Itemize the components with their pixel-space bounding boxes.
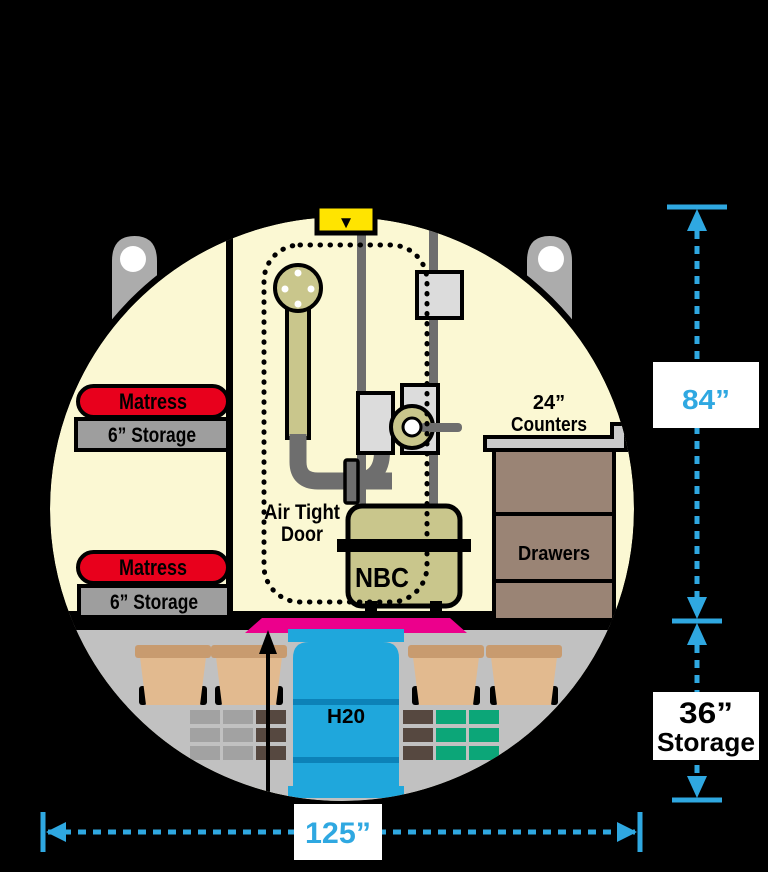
shower-nozzle-dot [295,301,302,308]
bin [256,746,286,760]
bin [223,728,253,742]
bin [469,728,499,742]
bin [223,710,253,724]
counter-label-line2: Counters [511,414,587,436]
nbc-leg-right [430,601,442,617]
entry-hatch-marker: ▼ [317,206,375,233]
bucket [413,657,479,705]
storage-shelf-upper-label: 6” Storage [108,424,196,447]
shelter-cross-section-diagram: Matress 6” Storage Matress 6” Storage 24… [0,0,768,872]
lug-plate-right [572,233,578,313]
drawers-label: Drawers [518,543,590,565]
air-tight-door-label-line2: Door [281,523,323,546]
bin [436,728,466,742]
interior-height-value: 84” [682,384,730,415]
nbc-band [337,539,471,552]
bucket [216,657,282,705]
water-label: H20 [327,706,365,728]
counter-label-line1: 24” [533,392,565,414]
storage-shelf-lower-label: 6” Storage [110,591,198,614]
bin [436,710,466,724]
storage-bins-left [190,710,286,760]
bucket [140,657,206,705]
bucket-lid [135,645,211,658]
drawer-cabinet [494,448,614,620]
storage-height-value: 36” [679,697,733,730]
bucket-lid [408,645,484,658]
shower-nozzle-dot [295,270,302,277]
barrel-top-rim [288,629,404,642]
pipe-fitting [345,460,358,503]
lug-hole-left [120,246,146,272]
lug-plate-left [106,233,112,313]
bin [403,746,433,760]
bin [469,710,499,724]
diagram-canvas: Matress 6” Storage Matress 6” Storage 24… [0,0,768,872]
storage-height-word: Storage [657,727,755,757]
shower-stalk [287,300,309,438]
barrel-bottom-rim [288,786,404,798]
bin [190,746,220,760]
overall-width-value: 125” [305,817,371,850]
bin [256,728,286,742]
shower-nozzle-dot [282,286,289,293]
bucket-lid [486,645,562,658]
bin [436,746,466,760]
exhaust-pipe [429,210,438,510]
air-pump-body [358,393,393,453]
bin [190,710,220,724]
mattress-upper-label: Matress [119,389,187,414]
crank-hub [403,418,421,436]
lug-hole-right [538,246,564,272]
storage-bins-right [403,710,499,760]
water-barrel: H20 [288,629,404,798]
bin [403,728,433,742]
bucket [491,657,557,705]
nbc-label: NBC [355,562,409,593]
bin [403,710,433,724]
bin [256,710,286,724]
bin [469,746,499,760]
air-tight-door-label-line1: Air Tight [264,501,340,524]
hatch-down-arrow-icon: ▼ [338,213,355,232]
mattress-lower-label: Matress [119,555,187,580]
bin [190,728,220,742]
pipe-junction-box [417,272,462,318]
bin [223,746,253,760]
shower-nozzle-dot [308,286,315,293]
